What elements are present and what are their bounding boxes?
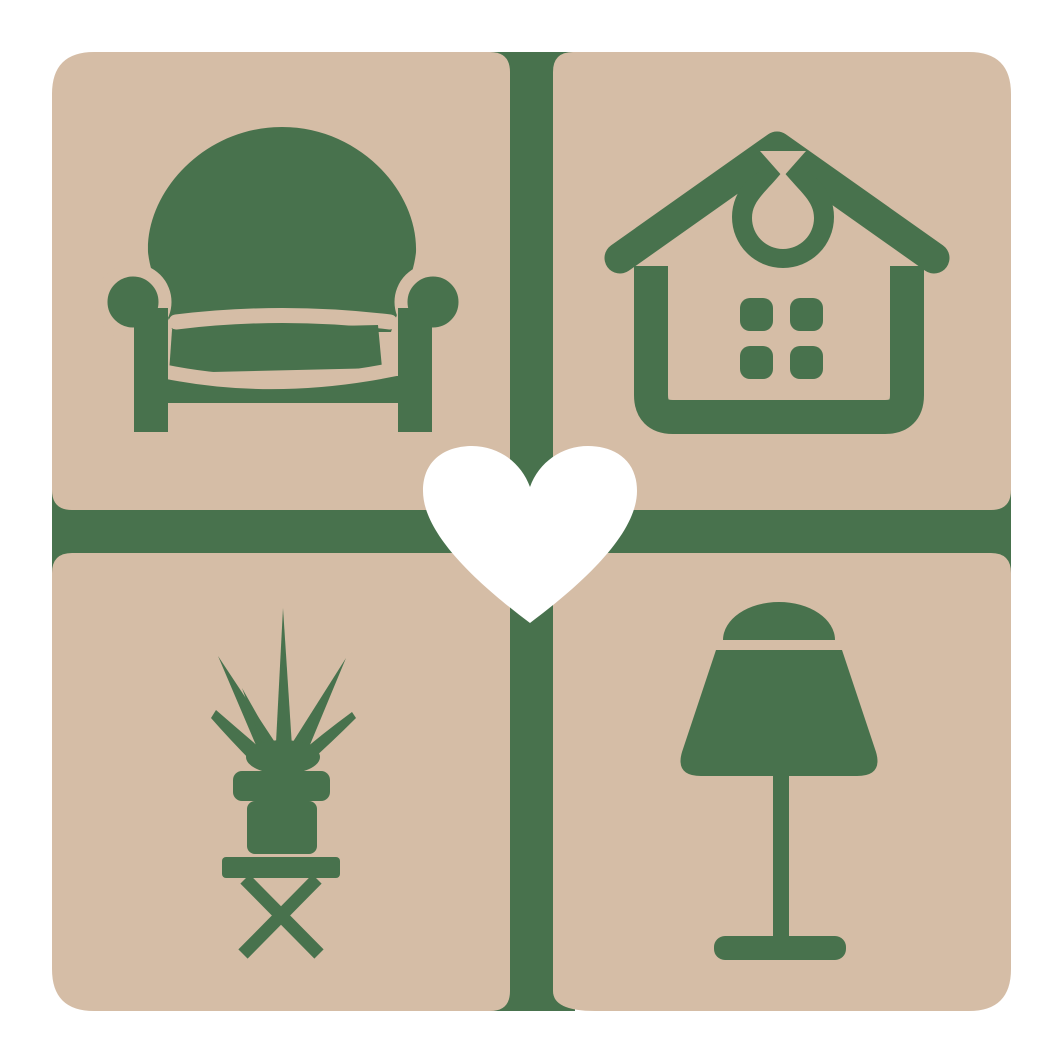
logo-canvas bbox=[0, 0, 1063, 1063]
armchair-right-leg bbox=[398, 308, 432, 432]
lamp-base bbox=[714, 936, 846, 960]
armchair-left-leg bbox=[134, 308, 168, 432]
house-window-pane bbox=[740, 346, 773, 379]
logo-graphic bbox=[0, 0, 1063, 1063]
tile-top-right bbox=[553, 52, 1011, 510]
lamp-stem bbox=[773, 776, 789, 946]
house-window-pane bbox=[740, 298, 773, 331]
plant-pot-rim bbox=[233, 771, 330, 801]
house-window-pane bbox=[790, 346, 823, 379]
plant-pot-body bbox=[247, 801, 317, 854]
armchair-seat-cushion bbox=[169, 325, 382, 373]
plant-leaf-clump bbox=[246, 740, 320, 774]
stool-seat bbox=[222, 857, 340, 878]
armchair-seam-top bbox=[176, 316, 390, 323]
lamp-shade bbox=[681, 650, 878, 776]
house-window-pane bbox=[790, 298, 823, 331]
